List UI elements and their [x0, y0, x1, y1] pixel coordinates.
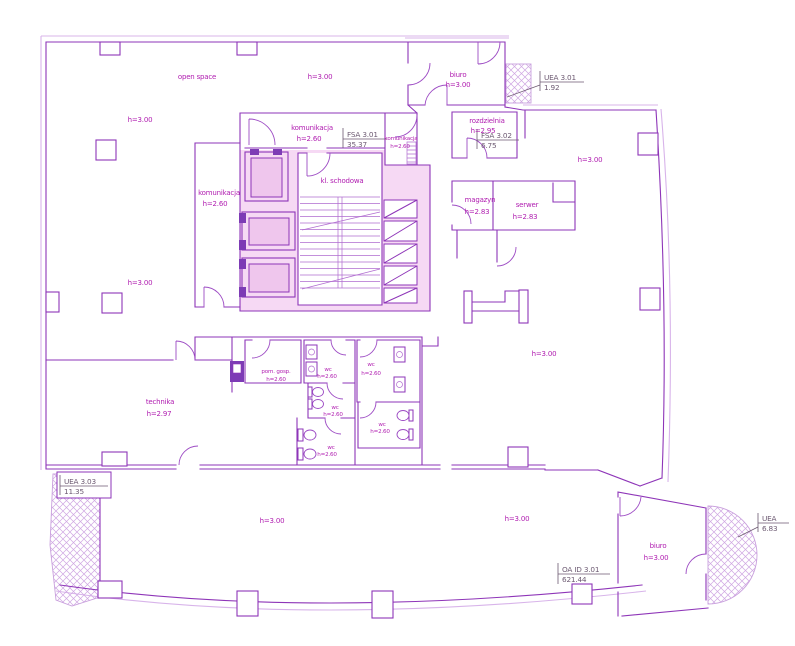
- column: [46, 292, 59, 312]
- elevator-door-jamb: [250, 149, 259, 155]
- duct-shafts: [384, 200, 417, 303]
- door-arc: [307, 153, 330, 176]
- height-label: h=2.60: [297, 135, 322, 143]
- contour-right-curve: [661, 109, 670, 482]
- area-label-code: UEA 3.01: [544, 73, 576, 82]
- balcony-top-right: [506, 64, 531, 103]
- room-label-wc: wc: [378, 422, 385, 428]
- door-arc: [325, 418, 341, 434]
- duct-shaft-box: [384, 200, 417, 218]
- elevator-door-jamb: [273, 149, 282, 155]
- sink-icon: [394, 377, 405, 392]
- height-label: h=3.00: [532, 350, 557, 358]
- height-label: h=2.60: [323, 412, 343, 418]
- height-label: h=2.60: [390, 144, 410, 150]
- duct-shaft-box: [384, 221, 417, 241]
- staircase: [300, 197, 380, 289]
- height-label: h=3.00: [308, 73, 333, 81]
- area-label-code: OA ID 3.01: [562, 565, 599, 574]
- elevator-door-jamb: [239, 240, 246, 250]
- room-label-wc: wc: [331, 405, 338, 411]
- toilet-icon: [298, 429, 316, 441]
- door-arc: [176, 341, 195, 360]
- elevator-car: [249, 218, 289, 245]
- room-label-pom-gosp: pom. gosp.: [261, 369, 291, 375]
- room-label-wc: wc: [367, 362, 374, 368]
- height-label: h=2.60: [370, 429, 390, 435]
- column: [572, 584, 592, 604]
- wall-step: [102, 452, 127, 466]
- room-label-komunikacja-small: komunikacja: [385, 136, 418, 142]
- area-label-rules: [60, 71, 789, 584]
- room-label-wc: wc: [324, 367, 331, 373]
- height-label: h=3.00: [128, 279, 153, 287]
- mid-wall-piece-path: [472, 291, 519, 311]
- height-label: h=3.00: [505, 515, 530, 523]
- duct-shaft-box: [384, 244, 417, 263]
- elevator-door-jamb: [239, 287, 246, 297]
- stair-treads: [300, 197, 380, 288]
- walls: [46, 42, 708, 616]
- room-label-open-space: open space: [178, 73, 216, 81]
- height-label: h=2.97: [147, 410, 172, 418]
- height-label: h=2.60: [266, 377, 286, 383]
- door-arc: [249, 119, 275, 145]
- height-label: h=3.00: [578, 156, 603, 164]
- area-label-value: 621.44: [562, 575, 587, 584]
- sink-icon: [306, 345, 317, 359]
- column: [372, 591, 393, 618]
- column: [98, 581, 122, 598]
- height-label: h=2.60: [317, 452, 337, 458]
- room-label-wc: wc: [327, 445, 334, 451]
- contour-bottom-curve: [56, 591, 646, 610]
- room-labels: open space h=3.00 h=3.00 h=3.00 biuro h=…: [128, 71, 669, 562]
- column: [237, 591, 258, 616]
- column: [102, 293, 122, 313]
- column: [237, 42, 257, 55]
- door-arc: [204, 287, 224, 307]
- area-label-code: UEA 3.03: [64, 477, 96, 486]
- area-label-value: 1.92: [544, 83, 559, 92]
- room-label-magazyn: magazyn: [465, 196, 496, 204]
- columns: [46, 42, 660, 618]
- height-label: h=2.83: [465, 208, 490, 216]
- height-label: h=3.00: [128, 116, 153, 124]
- area-label-code: UEA: [762, 514, 777, 523]
- area-labels: FSA 3.01 35.37 UEA 3.01 1.92 FSA 3.02 6.…: [64, 73, 778, 584]
- wall-pier: [519, 290, 528, 323]
- door-arc: [360, 402, 376, 418]
- corridor-walls-path: [195, 143, 240, 307]
- toilet-icon: [308, 387, 324, 397]
- duct-shaft-box: [384, 266, 417, 285]
- area-label-value: 11.35: [64, 487, 84, 496]
- toilet-icon: [397, 410, 413, 421]
- wall-pier: [464, 291, 472, 323]
- toilet-icon: [298, 448, 316, 460]
- area-label-value: 6.83: [762, 524, 778, 533]
- room-label-serwer: serwer: [516, 201, 539, 209]
- area-label-code: FSA 3.01: [347, 130, 378, 139]
- room-label-biuro-br: biuro: [650, 542, 667, 550]
- height-label: h=3.00: [644, 554, 669, 562]
- column: [96, 140, 116, 160]
- floor-plan-drawing: open space h=3.00 h=3.00 h=3.00 biuro h=…: [0, 0, 795, 646]
- elevator-car: [249, 264, 289, 292]
- door-arc: [327, 383, 343, 399]
- column: [508, 447, 528, 467]
- door-arc: [395, 115, 417, 137]
- room-label-biuro-tr: biuro: [450, 71, 467, 79]
- sink-icon: [394, 347, 405, 362]
- door-arc: [686, 554, 706, 574]
- elevator-door-jamb: [239, 213, 246, 223]
- height-label: h=2.60: [317, 374, 337, 380]
- area-label-code: FSA 3.02: [481, 131, 512, 140]
- elevator-car: [251, 158, 282, 197]
- room-label-komunikacja-west: komunikacja: [198, 189, 240, 197]
- area-label-value: 35.37: [347, 140, 367, 149]
- toilet-icon: [308, 399, 324, 409]
- height-label: h=2.60: [203, 200, 228, 208]
- toilet-icon: [397, 429, 413, 440]
- door-arc: [360, 340, 377, 357]
- room-label-klatka-schodowa: kl. schodowa: [320, 177, 363, 185]
- height-label: h=3.00: [446, 81, 471, 89]
- door-arc: [425, 85, 447, 105]
- outer-walls-path: [46, 42, 664, 603]
- door-arc: [331, 340, 346, 355]
- door-arc: [408, 63, 430, 85]
- door-arc: [620, 497, 641, 516]
- duct-shaft-box: [384, 288, 417, 303]
- sink-icon: [306, 362, 317, 376]
- column: [640, 288, 660, 310]
- column: [638, 133, 658, 155]
- height-label: h=2.60: [361, 371, 381, 377]
- contour-top-left: [41, 36, 658, 470]
- balcony-bottom-right: [708, 506, 757, 604]
- door-arc: [478, 42, 500, 64]
- door-arc: [252, 340, 270, 358]
- door-arc: [179, 446, 198, 465]
- stair-direction-lines: [302, 212, 380, 289]
- column: [100, 42, 120, 55]
- elevator-door-jamb: [239, 259, 246, 269]
- room-label-technika: technika: [146, 398, 174, 406]
- room-label-rozdzielnia: rozdzielnia: [469, 117, 504, 125]
- area-label-value: 6.75: [481, 141, 496, 150]
- door-arc: [497, 247, 516, 266]
- room-label-komunikacja: komunikacja: [291, 124, 333, 132]
- floor-plan-canvas: open space h=3.00 h=3.00 h=3.00 biuro h=…: [0, 0, 795, 646]
- wc-block-walls-path: [232, 337, 438, 465]
- utility-shaft: [230, 361, 244, 382]
- height-label: h=3.00: [260, 517, 285, 525]
- height-label: h=2.83: [513, 213, 538, 221]
